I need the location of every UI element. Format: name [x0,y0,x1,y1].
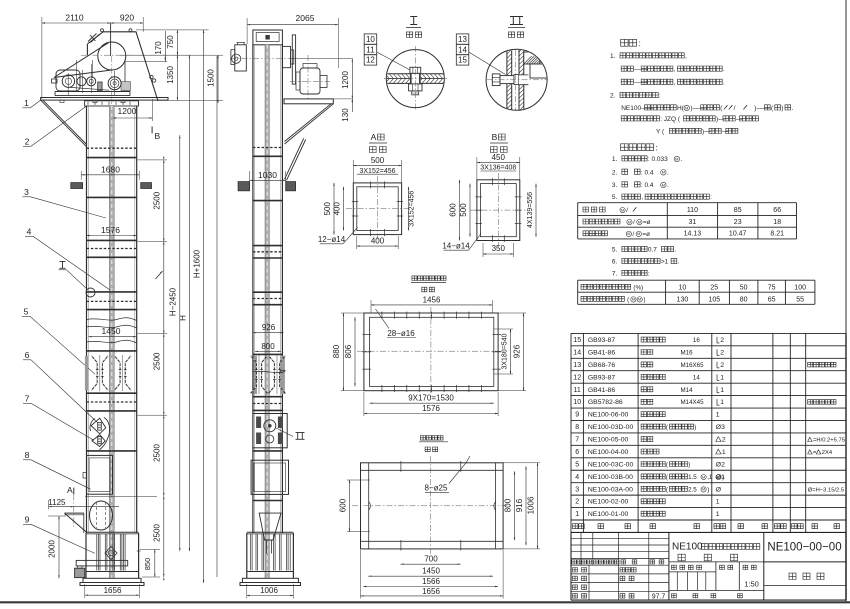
svg-text:2.: 2. [610,93,616,100]
svg-text:10: 10 [366,35,375,44]
svg-text:2500: 2500 [152,191,161,209]
svg-text:2065: 2065 [296,13,315,23]
svg-text:600: 600 [338,498,347,512]
svg-text:NE100-04-00: NE100-04-00 [588,449,629,456]
svg-text:1350: 1350 [166,66,175,84]
svg-text:A: A [67,485,73,495]
svg-text:2: 2 [720,349,724,356]
svg-text:3X180=540: 3X180=540 [501,333,508,369]
svg-text:7: 7 [575,437,579,444]
svg-text:NE100−00−00: NE100−00−00 [767,542,841,554]
svg-text:6.: 6. [612,259,618,266]
svg-text:2000: 2000 [48,540,57,558]
svg-text:1500: 1500 [207,69,216,87]
svg-text:11: 11 [366,45,375,54]
svg-text:2.5: 2.5 [688,486,697,493]
svg-text:2X4: 2X4 [822,450,833,456]
svg-text:1: 1 [720,387,724,394]
svg-text:M: M [662,183,665,187]
svg-text:15: 15 [458,56,467,65]
svg-text:M: M [621,208,624,212]
svg-text:2: 2 [25,137,30,147]
svg-text:NE100——: NE100—— [621,105,654,112]
svg-text:5.: 5. [612,194,618,201]
svg-text:1566: 1566 [422,577,440,586]
svg-text:66: 66 [773,207,781,214]
svg-text:: JZQ (: : JZQ ( [660,116,681,123]
svg-text:3: 3 [575,486,579,493]
svg-text:M14: M14 [681,387,694,394]
svg-text:>1: >1 [661,259,669,266]
svg-text:65: 65 [768,296,776,303]
svg-text:14−ø14: 14−ø14 [442,242,470,251]
svg-text:M: M [702,475,705,479]
svg-text:M: M [662,171,665,175]
svg-text:1: 1 [720,399,724,406]
svg-text:NE100-03C-00: NE100-03C-00 [588,461,634,468]
svg-text:28−ø16: 28−ø16 [387,329,415,338]
svg-text:Ø1: Ø1 [716,474,725,481]
svg-text:80: 80 [740,296,748,303]
svg-text:110: 110 [687,207,698,214]
svg-text:7: 7 [25,394,30,404]
svg-text:,: , [641,194,643,201]
svg-text:2: 2 [720,362,724,369]
svg-text:H(: H( [677,105,685,112]
svg-text:12: 12 [366,56,375,65]
svg-text:13: 13 [573,362,581,369]
svg-text:1: 1 [716,412,720,419]
svg-text:M: M [675,157,678,161]
svg-text:A: A [371,132,377,142]
svg-text::: : [648,271,650,278]
svg-text:1.: 1. [610,53,616,60]
svg-text:800: 800 [261,342,275,351]
svg-text:2.: 2. [612,169,618,176]
svg-text:10.47: 10.47 [729,231,747,238]
svg-text:7.: 7. [612,271,618,278]
svg-text:9: 9 [25,515,30,525]
svg-text:3X152=456: 3X152=456 [359,168,395,175]
svg-text:.: . [723,79,725,86]
svg-text::: : [639,38,641,48]
svg-text:1125: 1125 [48,498,66,507]
svg-text:14: 14 [573,349,581,356]
svg-text:M: M [637,232,640,236]
svg-text:M: M [702,488,705,492]
svg-text:1456: 1456 [423,296,441,305]
svg-text:NE100-02-00: NE100-02-00 [588,499,629,506]
svg-text:2: 2 [575,499,579,506]
svg-text:800: 800 [503,498,512,512]
svg-text:806: 806 [344,344,353,358]
svg-text:6: 6 [575,449,579,456]
svg-text:1006: 1006 [260,586,278,595]
svg-text::: : [710,194,712,201]
svg-text:3X136=408: 3X136=408 [480,165,516,172]
svg-text:25: 25 [710,284,718,291]
svg-text:10: 10 [573,399,581,406]
svg-text:4: 4 [27,227,32,237]
svg-text:130: 130 [677,296,689,303]
svg-text:18: 18 [773,219,781,226]
svg-text:8.21: 8.21 [770,231,784,238]
svg-text:926: 926 [262,323,276,332]
svg-text:GB68-76: GB68-76 [588,362,615,369]
svg-text:926: 926 [512,344,521,358]
svg-text:5: 5 [24,307,29,317]
svg-text:GB41-86: GB41-86 [588,349,615,356]
svg-text:1: 1 [720,374,724,381]
svg-text:: 0.4: : 0.4 [641,169,654,176]
svg-text:2: 2 [720,337,724,344]
svg-text:5: 5 [575,461,579,468]
svg-text:1030: 1030 [258,170,277,180]
svg-text:1656: 1656 [422,587,440,596]
svg-text:,: , [685,53,687,60]
svg-text:Y (: Y ( [656,129,665,136]
svg-text:GB93-87: GB93-87 [588,337,615,344]
svg-text:)—: )— [716,116,725,123]
svg-text:/: / [632,231,634,238]
svg-text:105: 105 [708,296,720,303]
svg-text:Ø=H−3.15/2.5: Ø=H−3.15/2.5 [808,487,844,493]
svg-text:)—: )— [702,129,711,136]
svg-text:2500: 2500 [152,352,161,370]
svg-text:): ) [707,486,709,493]
svg-text:/: / [633,219,635,226]
svg-text:1: 1 [24,98,29,108]
svg-text:0.7: 0.7 [648,247,657,254]
svg-text:2: 2 [722,437,726,444]
svg-text:,: , [674,79,676,86]
svg-text:1680: 1680 [101,164,120,174]
svg-text:12: 12 [573,374,581,381]
svg-text:=H/0.2+5.75: =H/0.2+5.75 [813,438,845,444]
svg-text:170: 170 [154,41,163,55]
svg-text:1.5: 1.5 [688,474,697,481]
svg-text:(%): (%) [633,284,643,291]
svg-text:H−2450: H−2450 [168,287,177,316]
svg-text:M: M [685,106,688,110]
svg-text:ø: ø [647,219,651,226]
svg-text:NE100: NE100 [672,541,703,552]
svg-text:Ø2: Ø2 [716,461,725,468]
svg-text:23: 23 [734,219,742,226]
svg-text:NE100-03A-00: NE100-03A-00 [588,486,633,493]
svg-text:450: 450 [492,153,506,162]
svg-text:): ) [694,424,696,431]
svg-text:9X170=1530: 9X170=1530 [408,394,454,403]
svg-text:.: . [678,259,680,266]
svg-text:M16X65: M16X65 [681,362,705,369]
svg-text:50: 50 [740,284,748,291]
svg-text:31: 31 [689,219,697,226]
svg-text:NE100-06-00: NE100-06-00 [588,412,629,419]
svg-text:500: 500 [459,203,468,217]
svg-text:H+1600: H+1600 [193,249,202,278]
svg-text:Ø: Ø [716,486,722,493]
svg-text:H: H [178,315,187,321]
svg-text:NE100-03D-00: NE100-03D-00 [588,424,634,431]
svg-text:8: 8 [575,424,579,431]
svg-text:12−ø14: 12−ø14 [318,235,346,244]
svg-text:1200: 1200 [118,106,137,116]
svg-text:1656: 1656 [104,586,122,595]
svg-text:B: B [492,132,498,142]
svg-text:14: 14 [693,374,700,381]
svg-text:2500: 2500 [152,444,161,462]
svg-text:75: 75 [768,284,776,291]
svg-text:916: 916 [515,498,524,512]
svg-text:14.13: 14.13 [684,231,702,238]
svg-text:8: 8 [25,450,30,460]
svg-text:1006: 1006 [526,496,535,514]
svg-text:850: 850 [143,558,152,571]
svg-text:1.: 1. [612,156,618,163]
svg-text:500: 500 [371,156,385,165]
svg-text:Ø3: Ø3 [716,424,725,431]
svg-text:55: 55 [796,296,804,303]
svg-text:M: M [638,220,641,224]
svg-text:8−ø25: 8−ø25 [425,484,448,493]
svg-text:GB41-86: GB41-86 [588,387,615,394]
svg-text:15: 15 [573,337,581,344]
svg-text:4: 4 [575,474,579,481]
svg-text:.: . [674,247,676,254]
svg-text:NE100-05-00: NE100-05-00 [588,437,629,444]
svg-text:350: 350 [492,244,506,253]
svg-text:2110: 2110 [65,13,84,23]
svg-text:,1: ,1 [707,474,713,481]
svg-text:130: 130 [341,108,350,122]
svg-text:NE100-03B-00: NE100-03B-00 [588,474,633,481]
svg-text:1: 1 [716,511,720,518]
svg-text:3X152=456: 3X152=456 [409,191,416,227]
svg-text:6: 6 [25,350,30,360]
svg-text:500: 500 [323,201,332,215]
svg-text:ø: ø [646,231,650,238]
svg-text:13: 13 [458,35,467,44]
svg-text:M: M [632,298,635,302]
svg-text:9: 9 [575,412,579,419]
svg-text:400: 400 [333,201,342,215]
svg-text::: : [656,142,658,152]
svg-text:400: 400 [371,237,385,246]
svg-text:3.: 3. [612,182,618,189]
svg-text:NE100-01-00: NE100-01-00 [588,511,629,518]
svg-text:GB5782-86: GB5782-86 [588,399,623,406]
svg-text:97.7: 97.7 [652,593,666,600]
svg-text:M16: M16 [681,349,694,356]
svg-text:B: B [155,131,161,141]
svg-text:,: , [674,66,676,73]
svg-text:): ) [688,461,690,468]
svg-text:1576: 1576 [422,404,440,413]
svg-text:M14X45: M14X45 [681,399,705,406]
svg-text:1576: 1576 [101,225,120,235]
svg-text:880: 880 [332,344,341,358]
svg-text:1:50: 1:50 [744,580,759,589]
svg-text:/: / [734,105,736,112]
svg-text:M: M [627,232,630,236]
svg-text:M: M [628,220,631,224]
svg-text:3: 3 [24,187,29,197]
svg-text:): ) [781,105,783,112]
svg-text:GB93-87: GB93-87 [588,374,615,381]
svg-text:1200: 1200 [341,71,350,89]
svg-text:/: / [626,207,628,214]
svg-text:.: . [723,66,725,73]
svg-text:10: 10 [679,284,687,291]
svg-text:.: . [681,156,683,163]
svg-text:.: . [667,182,669,189]
svg-text::: : [659,93,661,100]
svg-text:: 0.4: : 0.4 [641,182,654,189]
svg-text:): ) [643,296,645,303]
svg-text:1: 1 [722,449,726,456]
svg-text:5.: 5. [612,247,618,254]
svg-text:: 0.033: : 0.033 [648,156,668,163]
svg-text:1: 1 [716,499,720,506]
svg-text:85: 85 [734,207,742,214]
svg-text:16: 16 [693,337,700,344]
svg-text:.: . [792,105,794,112]
svg-text:11: 11 [574,387,581,394]
svg-text:750: 750 [166,35,175,49]
svg-text:2500: 2500 [152,524,161,542]
svg-text:100: 100 [794,284,806,291]
svg-text:600: 600 [449,203,458,217]
svg-text:4X139=556: 4X139=556 [527,192,534,228]
svg-text:920: 920 [120,13,134,23]
svg-text:1450: 1450 [422,567,440,576]
svg-text:.: . [667,169,669,176]
svg-text:700: 700 [424,555,438,564]
svg-text:14: 14 [458,45,467,54]
svg-text:1: 1 [575,511,579,518]
svg-text:M: M [638,298,641,302]
